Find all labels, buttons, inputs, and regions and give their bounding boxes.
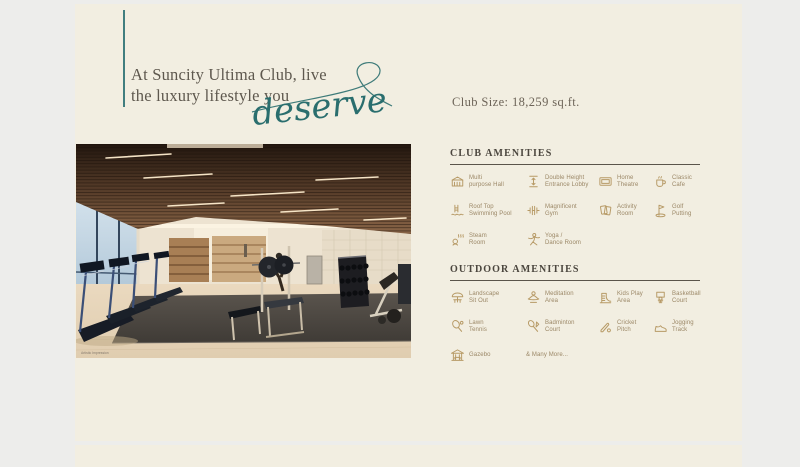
amenity-label: Kids PlayArea [617, 291, 643, 305]
lobby-icon [526, 174, 541, 189]
amenity-label: Roof TopSwimming Pool [469, 204, 512, 218]
club-amenity-item: HomeTheatre [598, 171, 653, 192]
gym-photo: Artistic Impression [76, 144, 411, 358]
club-amenity-item: Yoga /Dance Room [526, 229, 598, 250]
amenity-label: ClassicCafe [672, 175, 692, 189]
amenity-label: Gazebo [469, 352, 491, 359]
basketball-icon [653, 290, 668, 305]
club-amenities-title: CLUB AMENITIES [450, 148, 700, 165]
amenity-label: Yoga /Dance Room [545, 233, 581, 247]
meditation-icon [526, 290, 541, 305]
cricket-icon [598, 319, 613, 334]
club-amenity-item: GolfPutting [653, 200, 700, 221]
amenity-label: BasketballCourt [672, 291, 701, 305]
club-amenity-item: MagnificentGym [526, 200, 598, 221]
next-slide-edge [75, 445, 742, 467]
steam-icon [450, 232, 465, 247]
outdoor-amenities-title: OUTDOOR AMENITIES [450, 264, 700, 281]
club-size-text: Club Size: 18,259 sq.ft. [452, 95, 580, 110]
pool-icon [450, 203, 465, 218]
kids-play-icon [598, 290, 613, 305]
outdoor-amenity-item: LandscapeSit Out [450, 287, 526, 308]
amenity-label: LawnTennis [469, 320, 487, 334]
amenity-label: MeditationArea [545, 291, 574, 305]
activity-icon [598, 203, 613, 218]
yoga-icon [526, 232, 541, 247]
club-amenity-item: ClassicCafe [653, 171, 700, 192]
outdoor-amenity-item: JoggingTrack [653, 316, 700, 337]
hall-icon [450, 174, 465, 189]
outdoor-amenity-item: Gazebo [450, 345, 526, 366]
outdoor-amenity-item: LawnTennis [450, 316, 526, 337]
landscape-icon [450, 290, 465, 305]
club-amenity-item: Multipurpose Hall [450, 171, 526, 192]
photo-caption: Artistic Impression [81, 351, 109, 355]
amenity-label: CricketPitch [617, 320, 636, 334]
outdoor-amenity-item: CricketPitch [598, 316, 653, 337]
club-amenities-grid: Multipurpose HallDouble HeightEntrance L… [450, 171, 700, 250]
club-amenity-item: Double HeightEntrance Lobby [526, 171, 598, 192]
amenity-label: & Many More... [526, 352, 568, 359]
outdoor-amenities-grid: LandscapeSit OutMeditationAreaKids PlayA… [450, 287, 700, 366]
outdoor-amenities-section: OUTDOOR AMENITIES LandscapeSit OutMedita… [450, 264, 700, 366]
amenity-label: JoggingTrack [672, 320, 694, 334]
amenity-label: MagnificentGym [545, 204, 577, 218]
teal-accent-line [123, 10, 125, 107]
club-amenity-item: Roof TopSwimming Pool [450, 200, 526, 221]
outdoor-amenity-item: & Many More... [526, 345, 598, 366]
gazebo-icon [450, 348, 465, 363]
outdoor-amenity-item: BasketballCourt [653, 287, 700, 308]
badminton-icon [526, 319, 541, 334]
amenity-label: Multipurpose Hall [469, 175, 504, 189]
outdoor-amenity-item: MeditationArea [526, 287, 598, 308]
amenity-label: BadmintonCourt [545, 320, 575, 334]
outdoor-amenity-item: Kids PlayArea [598, 287, 653, 308]
amenity-label: Double HeightEntrance Lobby [545, 175, 588, 189]
amenity-label: LandscapeSit Out [469, 291, 499, 305]
amenity-label: HomeTheatre [617, 175, 638, 189]
club-amenity-item: ActivityRoom [598, 200, 653, 221]
jogging-icon [653, 319, 668, 334]
amenity-label: ActivityRoom [617, 204, 637, 218]
outdoor-amenity-item: BadmintonCourt [526, 316, 598, 337]
club-amenity-item: SteamRoom [450, 229, 526, 250]
club-amenities-section: CLUB AMENITIES Multipurpose HallDouble H… [450, 148, 700, 250]
golf-icon [653, 203, 668, 218]
gym-icon [526, 203, 541, 218]
amenity-label: GolfPutting [672, 204, 691, 218]
amenity-label: SteamRoom [469, 233, 487, 247]
theatre-icon [598, 174, 613, 189]
cafe-icon [653, 174, 668, 189]
lawn-tennis-icon [450, 319, 465, 334]
